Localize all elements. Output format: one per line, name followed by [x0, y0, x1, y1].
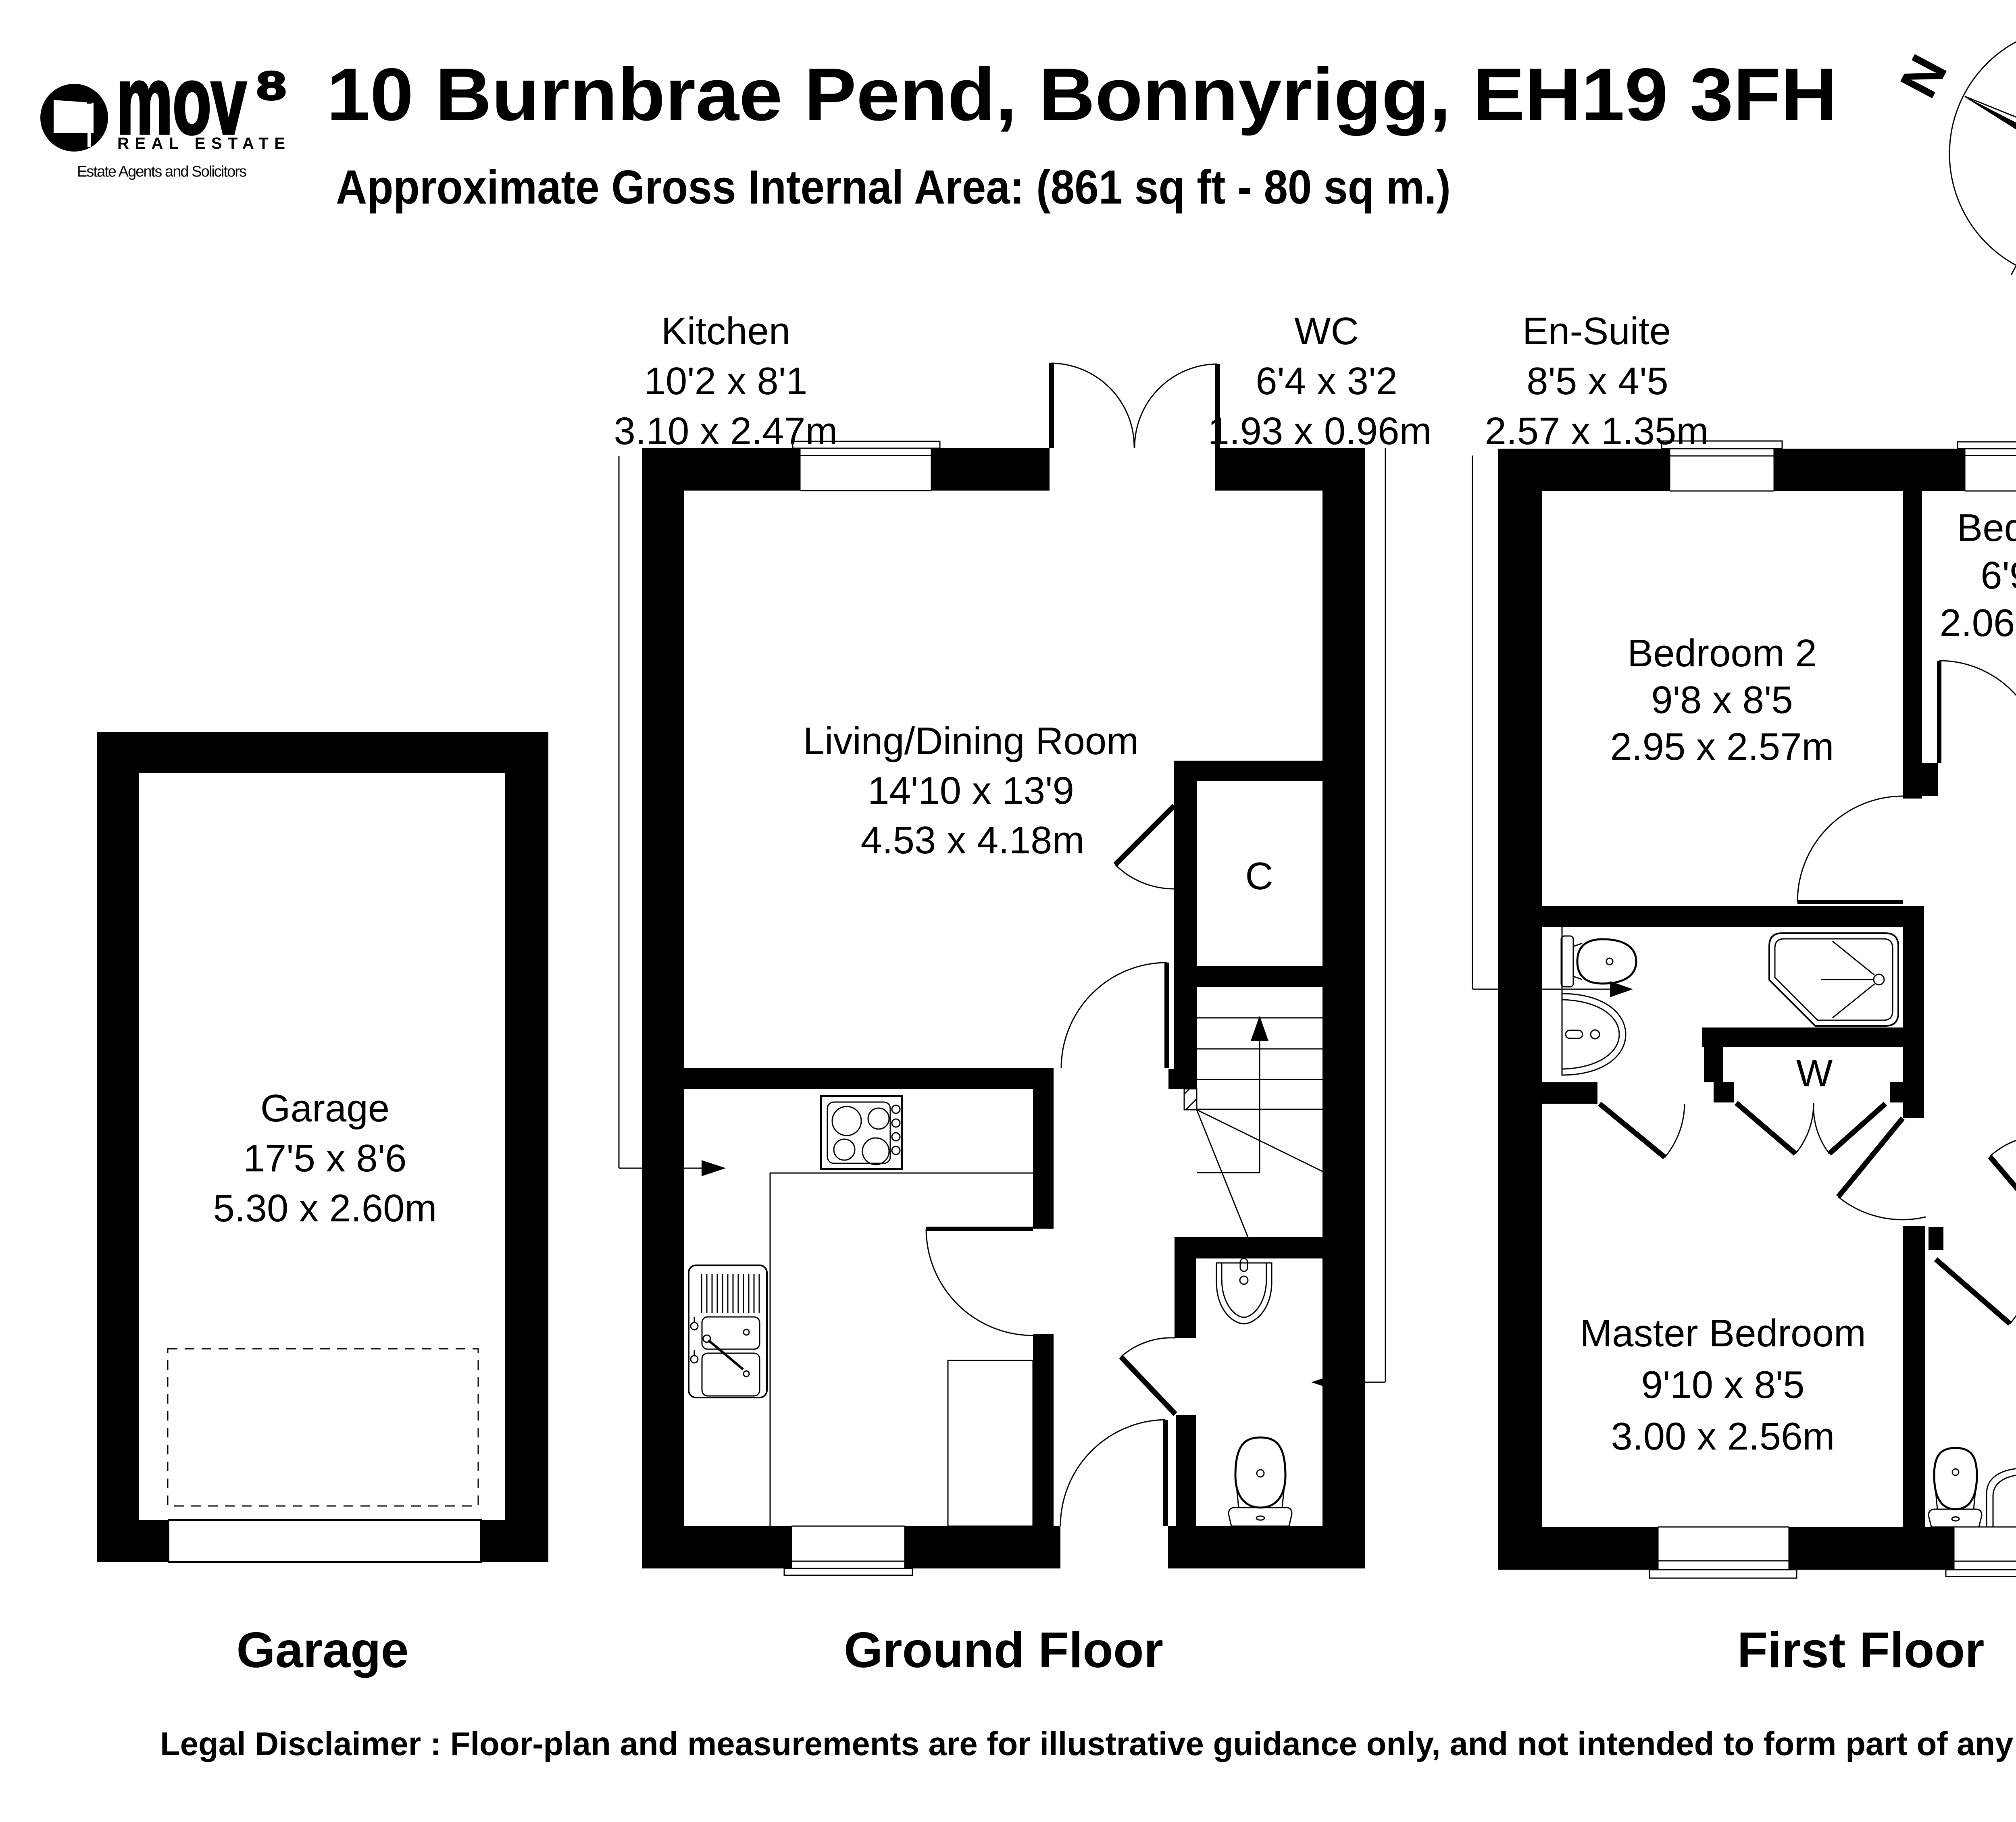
- svg-text:3.10 x 2.47m: 3.10 x 2.47m: [614, 410, 838, 453]
- svg-text:WC: WC: [1294, 310, 1359, 353]
- svg-text:4.53 x 4.18m: 4.53 x 4.18m: [861, 819, 1085, 862]
- svg-text:En-Suite: En-Suite: [1522, 310, 1671, 353]
- svg-text:6'4 x 3'2: 6'4 x 3'2: [1256, 360, 1397, 403]
- svg-text:10 Burnbrae Pend, Bonnyrigg, E: 10 Burnbrae Pend, Bonnyrigg, EH19 3FH: [327, 53, 1837, 136]
- svg-text:Bedroom 2: Bedroom 2: [1627, 632, 1817, 675]
- svg-text:1.93 x 0.96m: 1.93 x 0.96m: [1208, 410, 1432, 453]
- svg-text:Living/Dining Room: Living/Dining Room: [803, 720, 1139, 763]
- svg-text:Garage: Garage: [260, 1087, 389, 1130]
- svg-text:3.00 x 2.56m: 3.00 x 2.56m: [1611, 1415, 1835, 1458]
- svg-text:2.57 x 1.35m: 2.57 x 1.35m: [1485, 410, 1709, 453]
- svg-text:Estate Agents and Solicitors: Estate Agents and Solicitors: [77, 163, 247, 180]
- svg-text:2.95 x 2.57m: 2.95 x 2.57m: [1610, 725, 1834, 768]
- svg-text:5.30 x 2.60m: 5.30 x 2.60m: [213, 1187, 437, 1230]
- svg-text:Master Bedroom: Master Bedroom: [1580, 1312, 1866, 1355]
- svg-text:Garage: Garage: [236, 1622, 408, 1678]
- svg-text:Bedroom 3: Bedroom 3: [1957, 506, 2016, 549]
- svg-text:6'9 x 6'2: 6'9 x 6'2: [1981, 554, 2016, 597]
- svg-text:First Floor: First Floor: [1737, 1622, 1984, 1678]
- svg-text:Kitchen: Kitchen: [661, 310, 790, 353]
- svg-text:2.06 x 1.89m: 2.06 x 1.89m: [1940, 601, 2016, 645]
- svg-text:C: C: [1245, 855, 1273, 898]
- svg-text:8: 8: [256, 63, 286, 108]
- svg-text:9'10 x 8'5: 9'10 x 8'5: [1641, 1363, 1805, 1406]
- svg-text:9'8 x 8'5: 9'8 x 8'5: [1651, 678, 1793, 722]
- svg-text:8'5 x 4'5: 8'5 x 4'5: [1527, 360, 1668, 403]
- svg-text:17'5 x 8'6: 17'5 x 8'6: [244, 1137, 407, 1180]
- svg-text:REAL ESTATE: REAL ESTATE: [117, 135, 285, 152]
- svg-text:Ground Floor: Ground Floor: [844, 1622, 1163, 1678]
- svg-text:10'2 x 8'1: 10'2 x 8'1: [644, 360, 808, 403]
- svg-text:14'10 x 13'9: 14'10 x 13'9: [868, 769, 1074, 812]
- svg-text:Legal Disclaimer : Floor-plan: Legal Disclaimer : Floor-plan and measur…: [160, 1726, 2016, 1762]
- svg-text:Approximate Gross Internal Are: Approximate Gross Internal Area: (861 sq…: [336, 160, 1451, 214]
- svg-text:W: W: [1796, 1052, 1833, 1095]
